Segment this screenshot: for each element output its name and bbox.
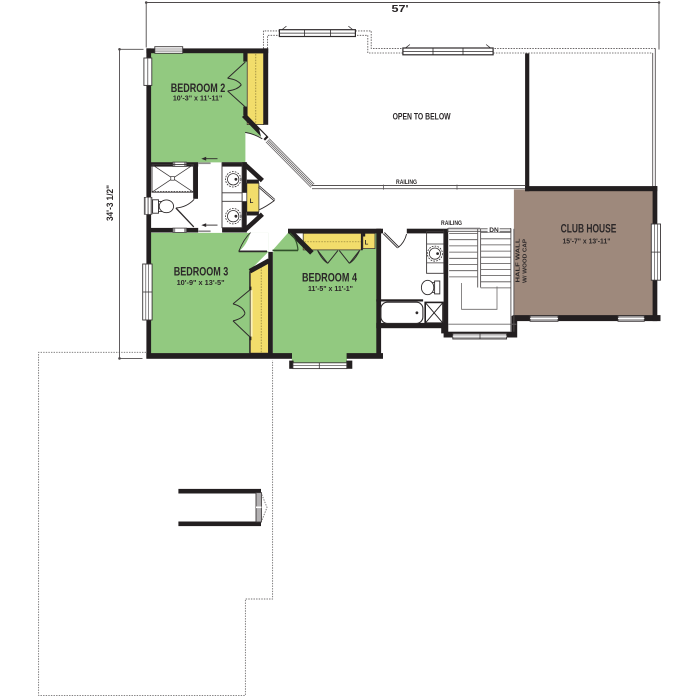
- svg-text:L: L: [250, 199, 254, 205]
- svg-text:RAILING: RAILING: [441, 220, 462, 227]
- svg-text:RAILING: RAILING: [396, 179, 417, 186]
- svg-text:11'-5" x 11'-1": 11'-5" x 11'-1": [308, 284, 353, 293]
- svg-text:W/ WOOD CAP: W/ WOOD CAP: [523, 239, 529, 283]
- svg-text:DN: DN: [489, 227, 499, 234]
- svg-text:BEDROOM 4: BEDROOM 4: [302, 271, 357, 285]
- svg-text:57': 57': [392, 3, 409, 15]
- svg-text:CLUB HOUSE: CLUB HOUSE: [561, 222, 617, 236]
- svg-text:BEDROOM 3: BEDROOM 3: [174, 264, 229, 278]
- svg-text:15'-7" x 13'-11": 15'-7" x 13'-11": [563, 237, 611, 246]
- svg-text:L: L: [365, 241, 369, 247]
- svg-text:34'-3 1/2": 34'-3 1/2": [105, 185, 116, 221]
- svg-text:10'-9" x 13'-5": 10'-9" x 13'-5": [177, 278, 225, 287]
- svg-text:OPEN TO BELOW: OPEN TO BELOW: [393, 112, 451, 122]
- svg-text:10'-3" x 11'-11": 10'-3" x 11'-11": [173, 94, 223, 103]
- svg-text:HALF WALL: HALF WALL: [516, 238, 522, 283]
